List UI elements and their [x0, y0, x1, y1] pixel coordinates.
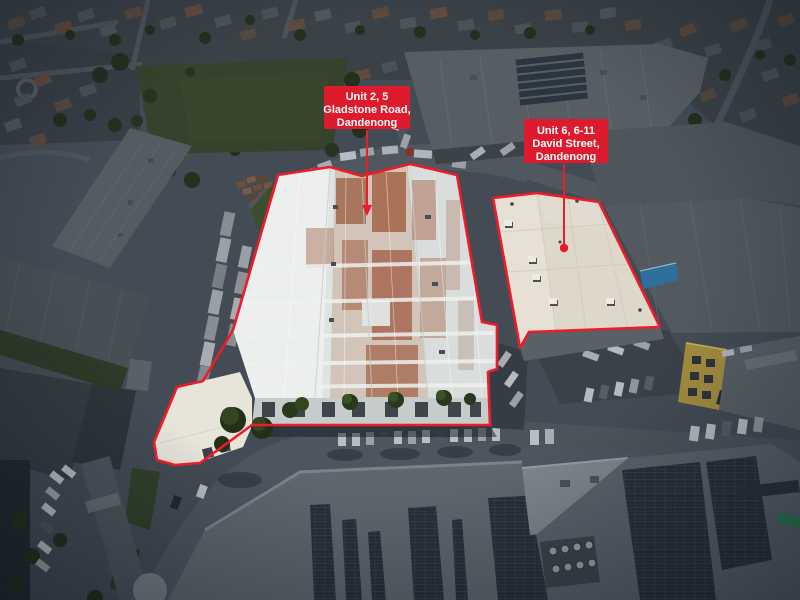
property-2-label-line1: Unit 6, 6-11	[537, 125, 595, 137]
property-2-label: Unit 6, 6-11 David Street, Dandenong	[524, 119, 608, 163]
property-2-label-line2: David Street,	[532, 138, 599, 150]
property-1-label-line3: Dandenong	[337, 117, 398, 129]
property-1-label-line2: Gladstone Road,	[323, 104, 410, 116]
property-2-marker-dot-icon	[560, 244, 568, 252]
property-1-label: Unit 2, 5 Gladstone Road, Dandenong	[323, 86, 410, 129]
property-2-label-line3: Dandenong	[536, 151, 597, 163]
property-1-label-line1: Unit 2, 5	[346, 91, 389, 103]
aerial-photo: Unit 2, 5 Gladstone Road, Dandenong Unit…	[0, 0, 800, 600]
aerial-photo-canvas: Unit 2, 5 Gladstone Road, Dandenong Unit…	[0, 0, 800, 600]
